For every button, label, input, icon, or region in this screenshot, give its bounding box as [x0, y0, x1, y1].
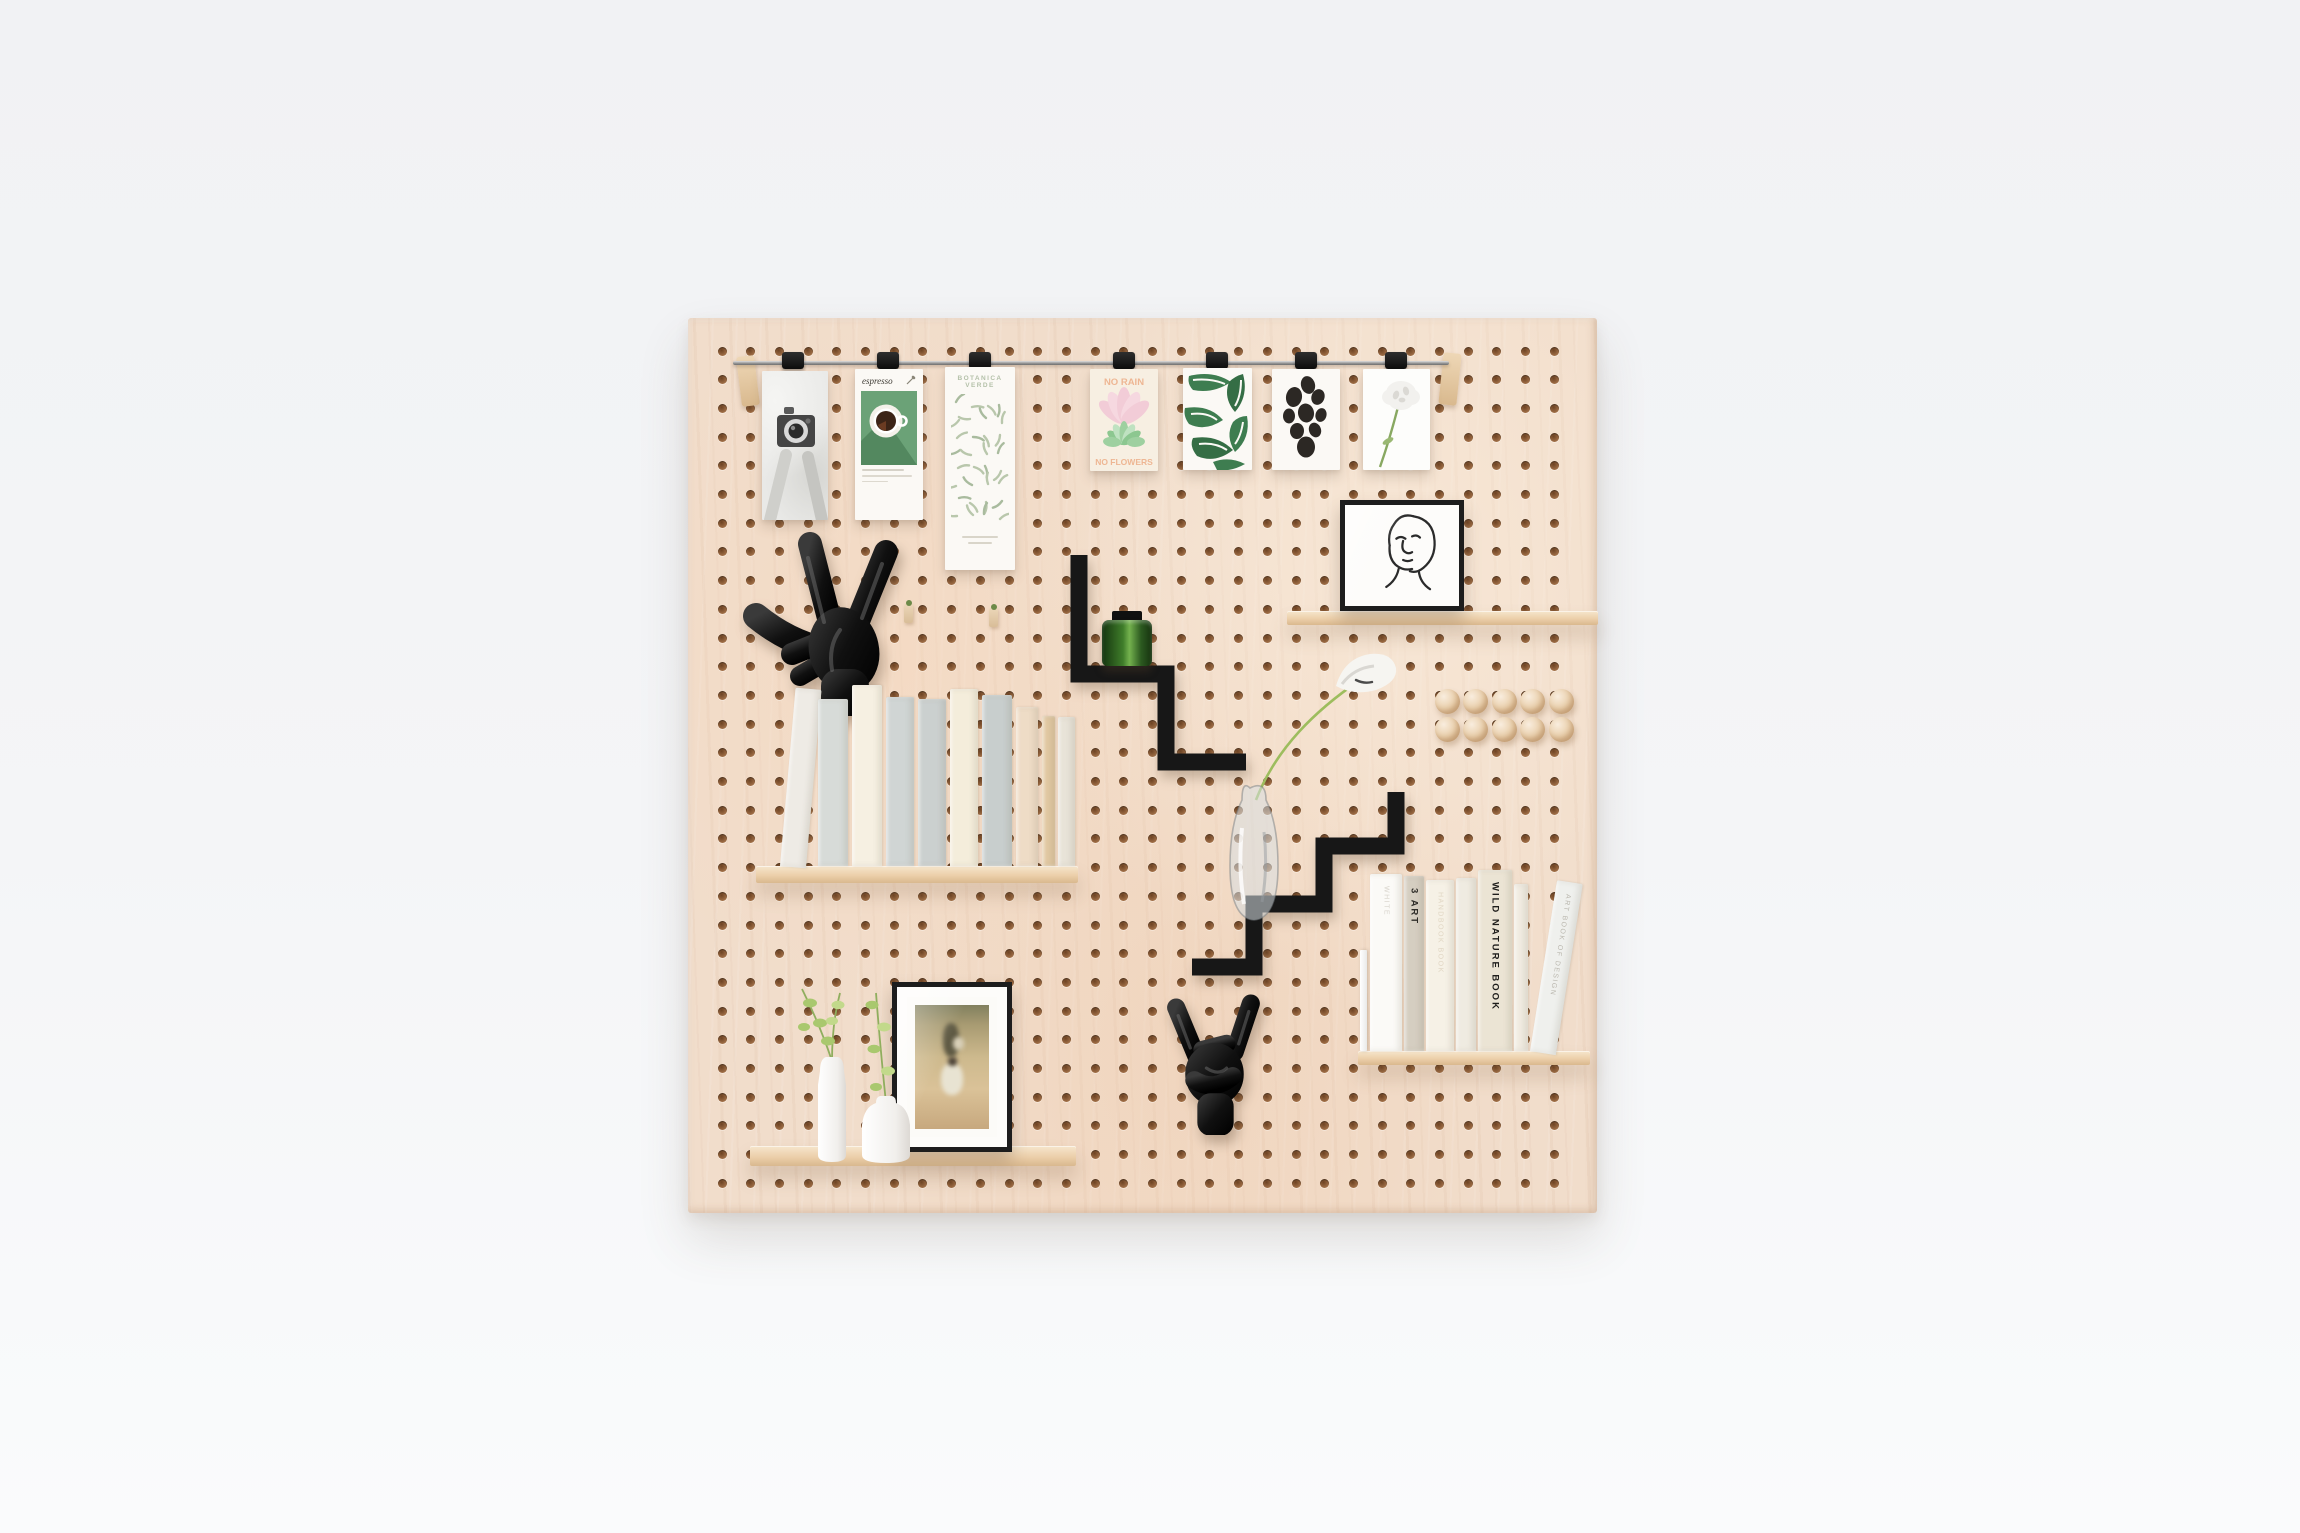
peg-hole: [1148, 1179, 1157, 1188]
peg-hole: [1205, 490, 1214, 499]
wooden-ball-peg: [1492, 689, 1517, 714]
peg-hole: [1464, 662, 1473, 671]
peg-hole: [804, 949, 813, 958]
peg-hole: [1005, 347, 1014, 356]
peg-hole: [1062, 978, 1071, 987]
peg-hole: [1550, 777, 1559, 786]
peg-hole: [1521, 576, 1530, 585]
peg-hole: [832, 490, 841, 499]
peg-hole: [1263, 519, 1272, 528]
peg-hole: [1435, 1150, 1444, 1159]
sage-leaf-pattern: [951, 394, 1009, 532]
peg-hole: [1263, 461, 1272, 470]
peg-hole: [1148, 1093, 1157, 1102]
green-glass-jar: [1102, 620, 1152, 666]
peg-hole: [1148, 921, 1157, 930]
peg-hole: [746, 461, 755, 470]
peg-hole: [1119, 978, 1128, 987]
peg-hole: [1521, 777, 1530, 786]
peg-hole: [746, 1093, 755, 1102]
peg-hole: [1234, 1150, 1243, 1159]
peg-hole: [1091, 978, 1100, 987]
peg-hole: [1292, 1121, 1301, 1130]
book-spine: WHITE: [1370, 874, 1402, 1051]
botanica-card-title: BOTANICA VERDE: [945, 375, 1015, 389]
book-spine: [982, 695, 1012, 866]
peg-hole: [1005, 949, 1014, 958]
peg-hole: [1062, 892, 1071, 901]
peg-hole: [1435, 1121, 1444, 1130]
rail-clip: [1113, 352, 1135, 369]
wooden-ball-peg: [1463, 689, 1488, 714]
peg-hole: [1062, 490, 1071, 499]
peg-hole: [1033, 892, 1042, 901]
peg-hole: [1406, 1150, 1415, 1159]
rail-clip: [1295, 352, 1317, 369]
wood-shelf-top-right: [1287, 611, 1598, 625]
peg-hole: [1550, 519, 1559, 528]
peg-hole: [1320, 1007, 1329, 1016]
peg-hole: [1033, 347, 1042, 356]
peg-hole: [976, 1179, 985, 1188]
book-spine-title: HANDBOOK BOOK: [1437, 892, 1444, 974]
peg-hole: [1550, 748, 1559, 757]
book-spine-title: WILD NATURE BOOK: [1490, 882, 1501, 1011]
peg-hole: [861, 949, 870, 958]
peg-hole: [1406, 490, 1415, 499]
peg-hole: [1521, 490, 1530, 499]
peg-hole: [1464, 547, 1473, 556]
peg-hole: [1148, 1035, 1157, 1044]
peg-hole: [1464, 1150, 1473, 1159]
book-spine-title: ART BOOK OF DESIGN: [1548, 893, 1571, 996]
peg-hole: [832, 1179, 841, 1188]
peg-hole: [1349, 461, 1358, 470]
book-spine-title: WHITE: [1383, 886, 1390, 916]
peg-hole: [1033, 949, 1042, 958]
peg-hole: [1378, 1121, 1387, 1130]
peg-hole: [718, 806, 727, 815]
peg-hole: [1464, 777, 1473, 786]
peg-hole: [832, 433, 841, 442]
peg-hole: [1349, 347, 1358, 356]
peg-hole: [1320, 347, 1329, 356]
peg-hole: [1205, 1150, 1214, 1159]
peg-hole: [890, 1179, 899, 1188]
peg-hole: [1148, 1121, 1157, 1130]
book-spine: [1456, 878, 1476, 1051]
peg-hole: [1119, 834, 1128, 843]
peg-hole: [1062, 949, 1071, 958]
peg-hole: [1033, 634, 1042, 643]
peg-hole: [1550, 1179, 1559, 1188]
peg-hole: [1521, 806, 1530, 815]
peg-hole: [746, 921, 755, 930]
book-spine: [780, 688, 822, 869]
peg-hole: [1091, 490, 1100, 499]
book-spine: [852, 685, 882, 866]
peg-hole: [1378, 1093, 1387, 1102]
peg-hole: [746, 490, 755, 499]
peg-hole: [1033, 1007, 1042, 1016]
peg-hole: [1292, 1150, 1301, 1159]
peg-hole: [918, 949, 927, 958]
peg-hole: [1521, 433, 1530, 442]
peg-hole: [1119, 863, 1128, 872]
peg-hole: [1148, 1007, 1157, 1016]
peg-hole: [1378, 490, 1387, 499]
peg-hole: [1464, 519, 1473, 528]
peg-hole: [1119, 1150, 1128, 1159]
peg-hole: [1320, 547, 1329, 556]
peg-hole: [1521, 1064, 1530, 1073]
peg-hole: [1464, 1093, 1473, 1102]
peg-hole: [1464, 748, 1473, 757]
peg-hole: [890, 921, 899, 930]
book-spine: ART BOOK OF DESIGN: [1530, 880, 1583, 1055]
peg-hole: [1550, 662, 1559, 671]
peg-hole: [1205, 519, 1214, 528]
white-flower-illustration: [1363, 369, 1430, 470]
peg-hole: [1464, 490, 1473, 499]
peg-hole: [746, 347, 755, 356]
peg-hole: [1091, 1150, 1100, 1159]
peg-hole: [1062, 347, 1071, 356]
peg-hole: [1033, 1179, 1042, 1188]
book-spine: [1016, 707, 1038, 866]
peg-hole: [1378, 1064, 1387, 1073]
peg-hole: [1033, 375, 1042, 384]
peg-hole: [832, 404, 841, 413]
peg-hole: [918, 892, 927, 901]
peg-hole: [1263, 1179, 1272, 1188]
peg-hole: [1234, 490, 1243, 499]
peg-hole: [832, 949, 841, 958]
peg-hole: [1464, 1121, 1473, 1130]
peg-hole: [1091, 347, 1100, 356]
peg-hole: [1492, 347, 1501, 356]
peg-hole: [746, 1121, 755, 1130]
peg-hole: [1091, 1007, 1100, 1016]
peg-hole: [947, 892, 956, 901]
peg-hole: [1349, 1093, 1358, 1102]
peg-hole: [1263, 1150, 1272, 1159]
peg-hole: [718, 519, 727, 528]
peg-hole: [1005, 662, 1014, 671]
peg-hole: [1033, 461, 1042, 470]
peg-hole: [1492, 404, 1501, 413]
peg-hole: [832, 921, 841, 930]
peg-hole: [1521, 662, 1530, 671]
card-white-flower-photo: [1363, 369, 1430, 470]
white-metal-bookend: [1360, 950, 1367, 1051]
no-flowers-text: NO FLOWERS: [1095, 457, 1153, 467]
peg-hole: [861, 1179, 870, 1188]
peg-hole: [1406, 347, 1415, 356]
peg-hole: [1349, 404, 1358, 413]
peg-hole: [1349, 1179, 1358, 1188]
peg-hole: [804, 892, 813, 901]
peg-hole: [1435, 1179, 1444, 1188]
book-spine: [1042, 716, 1055, 866]
white-bottle-vase: [818, 1057, 846, 1162]
calla-lily-flower: [1336, 654, 1396, 692]
peg-hole: [1005, 576, 1014, 585]
peg-hole: [1492, 547, 1501, 556]
peg-hole: [1378, 1150, 1387, 1159]
espresso-caption-lines: [855, 469, 923, 482]
peg-hole: [976, 662, 985, 671]
peg-hole: [1148, 949, 1157, 958]
peg-hole: [1148, 1150, 1157, 1159]
peg-hole: [1091, 921, 1100, 930]
peg-hole: [1435, 806, 1444, 815]
peg-hole: [1177, 519, 1186, 528]
peg-hole: [918, 1179, 927, 1188]
peg-hole: [1033, 519, 1042, 528]
peg-hole: [1062, 375, 1071, 384]
peg-hole: [1521, 834, 1530, 843]
no-rain-text: NO RAIN: [1104, 377, 1144, 388]
rail-clip: [877, 352, 899, 369]
peg-hole: [1521, 347, 1530, 356]
peg-hole: [1521, 1121, 1530, 1130]
peg-hole: [718, 461, 727, 470]
peg-hole: [718, 404, 727, 413]
peg-hole: [1263, 490, 1272, 499]
peg-hole: [718, 777, 727, 786]
wooden-ball-peg: [1549, 717, 1574, 742]
peg-hole: [1435, 404, 1444, 413]
peg-hole: [718, 1007, 727, 1016]
peg-hole: [1234, 347, 1243, 356]
peg-hole: [1521, 1150, 1530, 1159]
peg-hole: [1550, 433, 1559, 442]
peg-hole: [1005, 634, 1014, 643]
peg-hole: [746, 433, 755, 442]
peg-hole: [1062, 461, 1071, 470]
wood-shelf-left-books: [756, 866, 1078, 883]
book-spine-title: 3 ART: [1409, 888, 1420, 925]
peg-hole: [1492, 806, 1501, 815]
card-black-pebbles: [1272, 369, 1340, 470]
peg-hole: [1349, 1150, 1358, 1159]
peg-hole: [1005, 892, 1014, 901]
peg-hole: [1263, 375, 1272, 384]
white-vases-with-eucalyptus: [780, 975, 940, 1165]
peg-hole: [1119, 806, 1128, 815]
peg-hole: [1062, 1093, 1071, 1102]
peg-hole: [1205, 1179, 1214, 1188]
peg-hole: [832, 892, 841, 901]
peg-hole: [1033, 978, 1042, 987]
peg-hole: [1005, 1179, 1014, 1188]
peg-hole: [1148, 863, 1157, 872]
peg-hole: [1406, 1064, 1415, 1073]
peg-hole: [1177, 1150, 1186, 1159]
peg-hole: [718, 347, 727, 356]
espresso-card-title: espresso: [862, 376, 893, 386]
peg-hole: [718, 1150, 727, 1159]
peg-hole: [1320, 1093, 1329, 1102]
peg-hole: [746, 863, 755, 872]
peg-hole: [1062, 1035, 1071, 1044]
left-book-row: [756, 680, 1078, 866]
book-spine: 3 ART: [1404, 876, 1424, 1051]
peg-hole: [976, 921, 985, 930]
peg-hole: [1492, 1093, 1501, 1102]
peg-hole: [1492, 576, 1501, 585]
peg-hole: [1550, 834, 1559, 843]
peg-hole: [1292, 490, 1301, 499]
peg-hole: [1292, 576, 1301, 585]
peg-hole: [890, 949, 899, 958]
peg-hole: [718, 978, 727, 987]
peg-hole: [1234, 519, 1243, 528]
peg-hole: [1435, 433, 1444, 442]
vintage-camera-illustration: [762, 371, 828, 520]
peg-hole: [1550, 576, 1559, 585]
peg-hole: [1119, 1007, 1128, 1016]
peg-hole: [1378, 1179, 1387, 1188]
peg-hole: [1033, 490, 1042, 499]
peg-hole: [1550, 375, 1559, 384]
peg-hole: [1550, 806, 1559, 815]
peg-hole: [718, 1035, 727, 1044]
peg-hole: [1033, 1064, 1042, 1073]
book-spine: WILD NATURE BOOK: [1478, 870, 1512, 1051]
peg-hole: [832, 461, 841, 470]
rail-clip: [782, 352, 804, 369]
peg-hole: [1320, 1035, 1329, 1044]
peg-hole: [1062, 1064, 1071, 1073]
peg-hole: [1435, 1093, 1444, 1102]
peg-hole: [1550, 490, 1559, 499]
peg-hole: [1148, 519, 1157, 528]
card-tropical-leaves: [1183, 368, 1252, 470]
peg-hole: [746, 1179, 755, 1188]
peg-hole: [1062, 921, 1071, 930]
peg-hole: [918, 347, 927, 356]
peg-hole: [1550, 1064, 1559, 1073]
book-spine: HANDBOOK BOOK: [1426, 880, 1454, 1051]
peg-hole: [1492, 662, 1501, 671]
peg-hole: [1091, 863, 1100, 872]
peg-hole: [1148, 347, 1157, 356]
peg-hole: [1005, 605, 1014, 614]
peg-hole: [1148, 978, 1157, 987]
peg-hole: [1349, 1007, 1358, 1016]
book-spine: [818, 699, 848, 866]
peg-hole: [1119, 921, 1128, 930]
peg-hole: [1091, 519, 1100, 528]
card-no-rain-no-flowers: NO RAIN NO FLOWERS: [1090, 369, 1158, 471]
book-spine: [950, 689, 978, 866]
peg-hole: [1033, 547, 1042, 556]
peg-hole: [1521, 461, 1530, 470]
card-espresso: espresso: [855, 369, 923, 520]
peg-hole: [1033, 605, 1042, 614]
peg-hole: [718, 490, 727, 499]
peg-hole: [1320, 1179, 1329, 1188]
peg-hole: [1062, 404, 1071, 413]
peg-hole: [1119, 519, 1128, 528]
peg-hole: [1033, 576, 1042, 585]
peg-hole: [1492, 1179, 1501, 1188]
peg-hole: [1263, 433, 1272, 442]
peg-hole: [1033, 662, 1042, 671]
peg-hole: [775, 1179, 784, 1188]
peg-hole: [746, 834, 755, 843]
peg-hole: [1062, 433, 1071, 442]
peg-hole: [1148, 490, 1157, 499]
peg-hole: [718, 949, 727, 958]
peg-hole: [1033, 433, 1042, 442]
peg-hole: [1349, 1064, 1358, 1073]
peg-hole: [1177, 1179, 1186, 1188]
tropical-leaf-illustration: [1183, 368, 1252, 470]
peg-hole: [1091, 892, 1100, 901]
peg-hole: [1492, 433, 1501, 442]
peg-hole: [718, 748, 727, 757]
peg-hole: [1464, 834, 1473, 843]
peg-hole: [746, 720, 755, 729]
peg-hole: [1521, 634, 1530, 643]
peg-hole: [1435, 1064, 1444, 1073]
peg-hole: [1464, 806, 1473, 815]
peg-hole: [746, 748, 755, 757]
right-book-row: WHITE3 ARTHANDBOOK BOOKWILD NATURE BOOKA…: [1358, 868, 1590, 1051]
peg-hole: [1091, 1179, 1100, 1188]
peg-hole: [718, 433, 727, 442]
peg-hole: [1492, 634, 1501, 643]
peg-hole: [1062, 1179, 1071, 1188]
peg-hole: [1148, 834, 1157, 843]
peg-hole: [1464, 1064, 1473, 1073]
peg-hole: [1349, 490, 1358, 499]
peg-hole: [1320, 1150, 1329, 1159]
peg-hole: [1435, 662, 1444, 671]
peg-hole: [718, 921, 727, 930]
book-spine: [886, 697, 914, 866]
peg-hole: [1550, 347, 1559, 356]
peg-hole: [775, 949, 784, 958]
peg-hole: [1033, 1035, 1042, 1044]
peg-hole: [1550, 1093, 1559, 1102]
peg-hole: [746, 1007, 755, 1016]
peg-hole: [1349, 1035, 1358, 1044]
peg-hole: [1091, 806, 1100, 815]
card-camera-photo: [762, 371, 828, 520]
peg-hole: [1492, 519, 1501, 528]
rail-clip: [1206, 352, 1228, 369]
peg-hole: [1320, 519, 1329, 528]
wooden-ball-peg: [1435, 717, 1460, 742]
peg-hole: [1148, 806, 1157, 815]
product-photo-pegboard-scene: espresso BOTANICA VERDE: [0, 0, 2300, 1533]
peg-hole: [718, 662, 727, 671]
peg-hole: [1177, 490, 1186, 499]
peg-hole: [718, 547, 727, 556]
peg-hole: [775, 921, 784, 930]
peg-hole: [718, 834, 727, 843]
peg-hole: [1492, 748, 1501, 757]
peg-hole: [1349, 1121, 1358, 1130]
white-jug-vase: [862, 1096, 910, 1163]
peg-hole: [718, 1093, 727, 1102]
wooden-ball-peg: [1463, 717, 1488, 742]
peg-hole: [1091, 1035, 1100, 1044]
